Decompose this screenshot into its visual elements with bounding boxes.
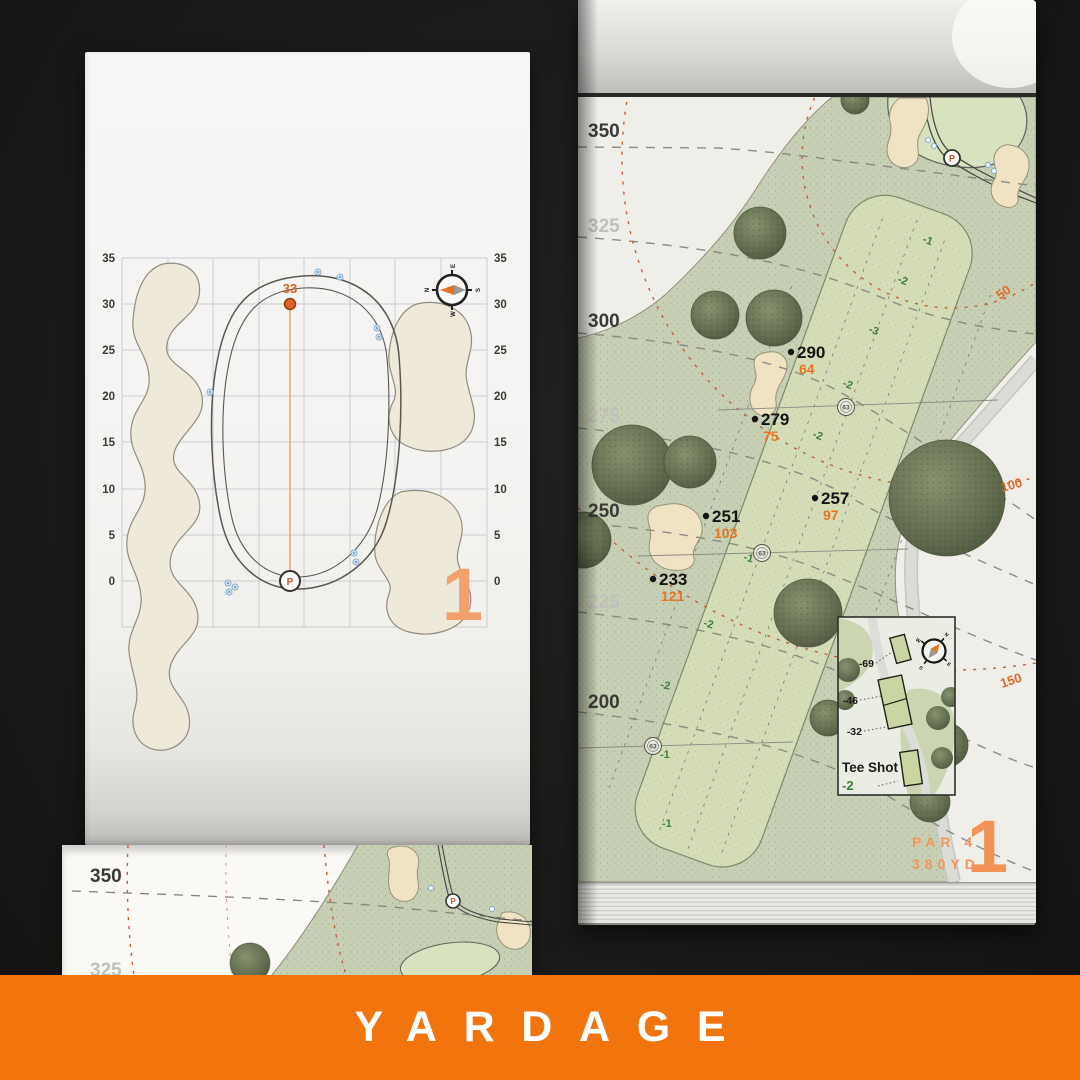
svg-text:5: 5 [109,530,116,542]
svg-text:P: P [949,154,955,164]
svg-text:20: 20 [494,391,507,403]
svg-text:279: 279 [761,410,789,429]
svg-text:325: 325 [588,216,620,237]
svg-text:200: 200 [588,692,620,713]
under-contour-350: 350 [90,866,122,887]
svg-text:35: 35 [102,253,115,265]
under-contour-325: 325 [90,960,122,975]
hole-map: 63 63 63 P 350 325 300 275 250 2 [578,0,1036,925]
hole-number: 1 [442,553,483,636]
svg-text:-2: -2 [659,679,671,693]
svg-text:-1: -1 [660,749,670,761]
svg-text:30: 30 [494,299,507,311]
svg-text:-32: -32 [847,726,862,738]
svg-text:350: 350 [588,121,620,142]
svg-text:-69: -69 [859,658,874,670]
svg-text:251: 251 [712,507,740,526]
svg-text:290: 290 [797,343,825,362]
svg-text:-46: -46 [843,695,858,707]
sprinkler-icons [207,269,382,595]
svg-text:103: 103 [714,525,738,541]
svg-text:0: 0 [494,576,500,588]
under-pin-icon: P [446,894,460,908]
pin-distance-label: 33 [283,281,297,296]
svg-text:63: 63 [649,744,657,751]
under-tree [230,943,270,975]
distance-dot [285,299,296,310]
tee-shot-inset: -69 -46 -32 Tee Shot -2 N E S W [835,617,966,795]
hole-number: 1 [967,805,1008,888]
pin-line: 33 P [280,281,300,591]
svg-text:97: 97 [823,507,839,523]
svg-text:25: 25 [102,345,115,357]
sprinkler-63-3: 63 [645,738,662,755]
green-detail-map: 33 P 35 30 25 20 15 10 5 0 35 30 25 20 1… [85,52,530,845]
svg-text:10: 10 [102,484,115,496]
svg-text:-1: -1 [662,818,672,830]
svg-text:257: 257 [821,489,849,508]
under-page: P 350 325 [62,845,532,975]
tee-shot-title: Tee Shot [842,760,899,775]
svg-text:250: 250 [588,501,620,522]
pin-icon: P [944,150,960,166]
under-page-map: P 350 325 [62,845,532,975]
svg-text:35: 35 [494,253,507,265]
svg-text:25: 25 [494,345,507,357]
svg-text:10: 10 [494,484,507,496]
svg-text:P: P [287,577,294,588]
svg-text:63: 63 [758,551,766,558]
svg-text:121: 121 [661,588,685,604]
svg-text:30: 30 [102,299,115,311]
svg-text:15: 15 [494,437,507,449]
svg-text:W: W [451,311,457,317]
svg-text:233: 233 [659,570,687,589]
page-stack-edge [578,882,1036,925]
svg-text:5: 5 [494,530,501,542]
axis-labels-right: 35 30 25 20 15 10 5 0 [494,253,507,588]
svg-text:S: S [476,288,482,292]
axis-labels-left: 35 30 25 20 15 10 5 0 [102,253,115,588]
banner-title: YARDAGE [354,1003,752,1052]
green-outline [211,276,400,589]
svg-text:63: 63 [842,405,850,412]
hole-map-page: 63 63 63 P 350 325 300 275 250 2 [578,0,1036,925]
poster: { "banner": { "label": "YARDAGE" }, "com… [0,0,1080,1080]
bunkers [127,263,475,750]
yardage-banner: YARDAGE [0,975,1080,1080]
svg-text:300: 300 [588,311,620,332]
sprinkler-63-2: 63 [754,545,771,562]
svg-text:20: 20 [102,391,115,403]
svg-text:15: 15 [102,437,115,449]
svg-text:75: 75 [763,428,779,444]
tee-shot-total: -2 [842,778,854,793]
svg-text:N: N [425,288,431,292]
svg-text:P: P [450,897,456,906]
svg-text:225: 225 [588,592,620,613]
svg-text:0: 0 [109,576,115,588]
green-detail-page: 33 P 35 30 25 20 15 10 5 0 35 30 25 20 1… [85,52,530,845]
svg-text:E: E [451,264,457,268]
svg-text:64: 64 [799,361,815,377]
page-top-curl [578,0,1036,97]
sprinkler-63-1: 63 [838,399,855,416]
svg-text:275: 275 [588,406,620,427]
